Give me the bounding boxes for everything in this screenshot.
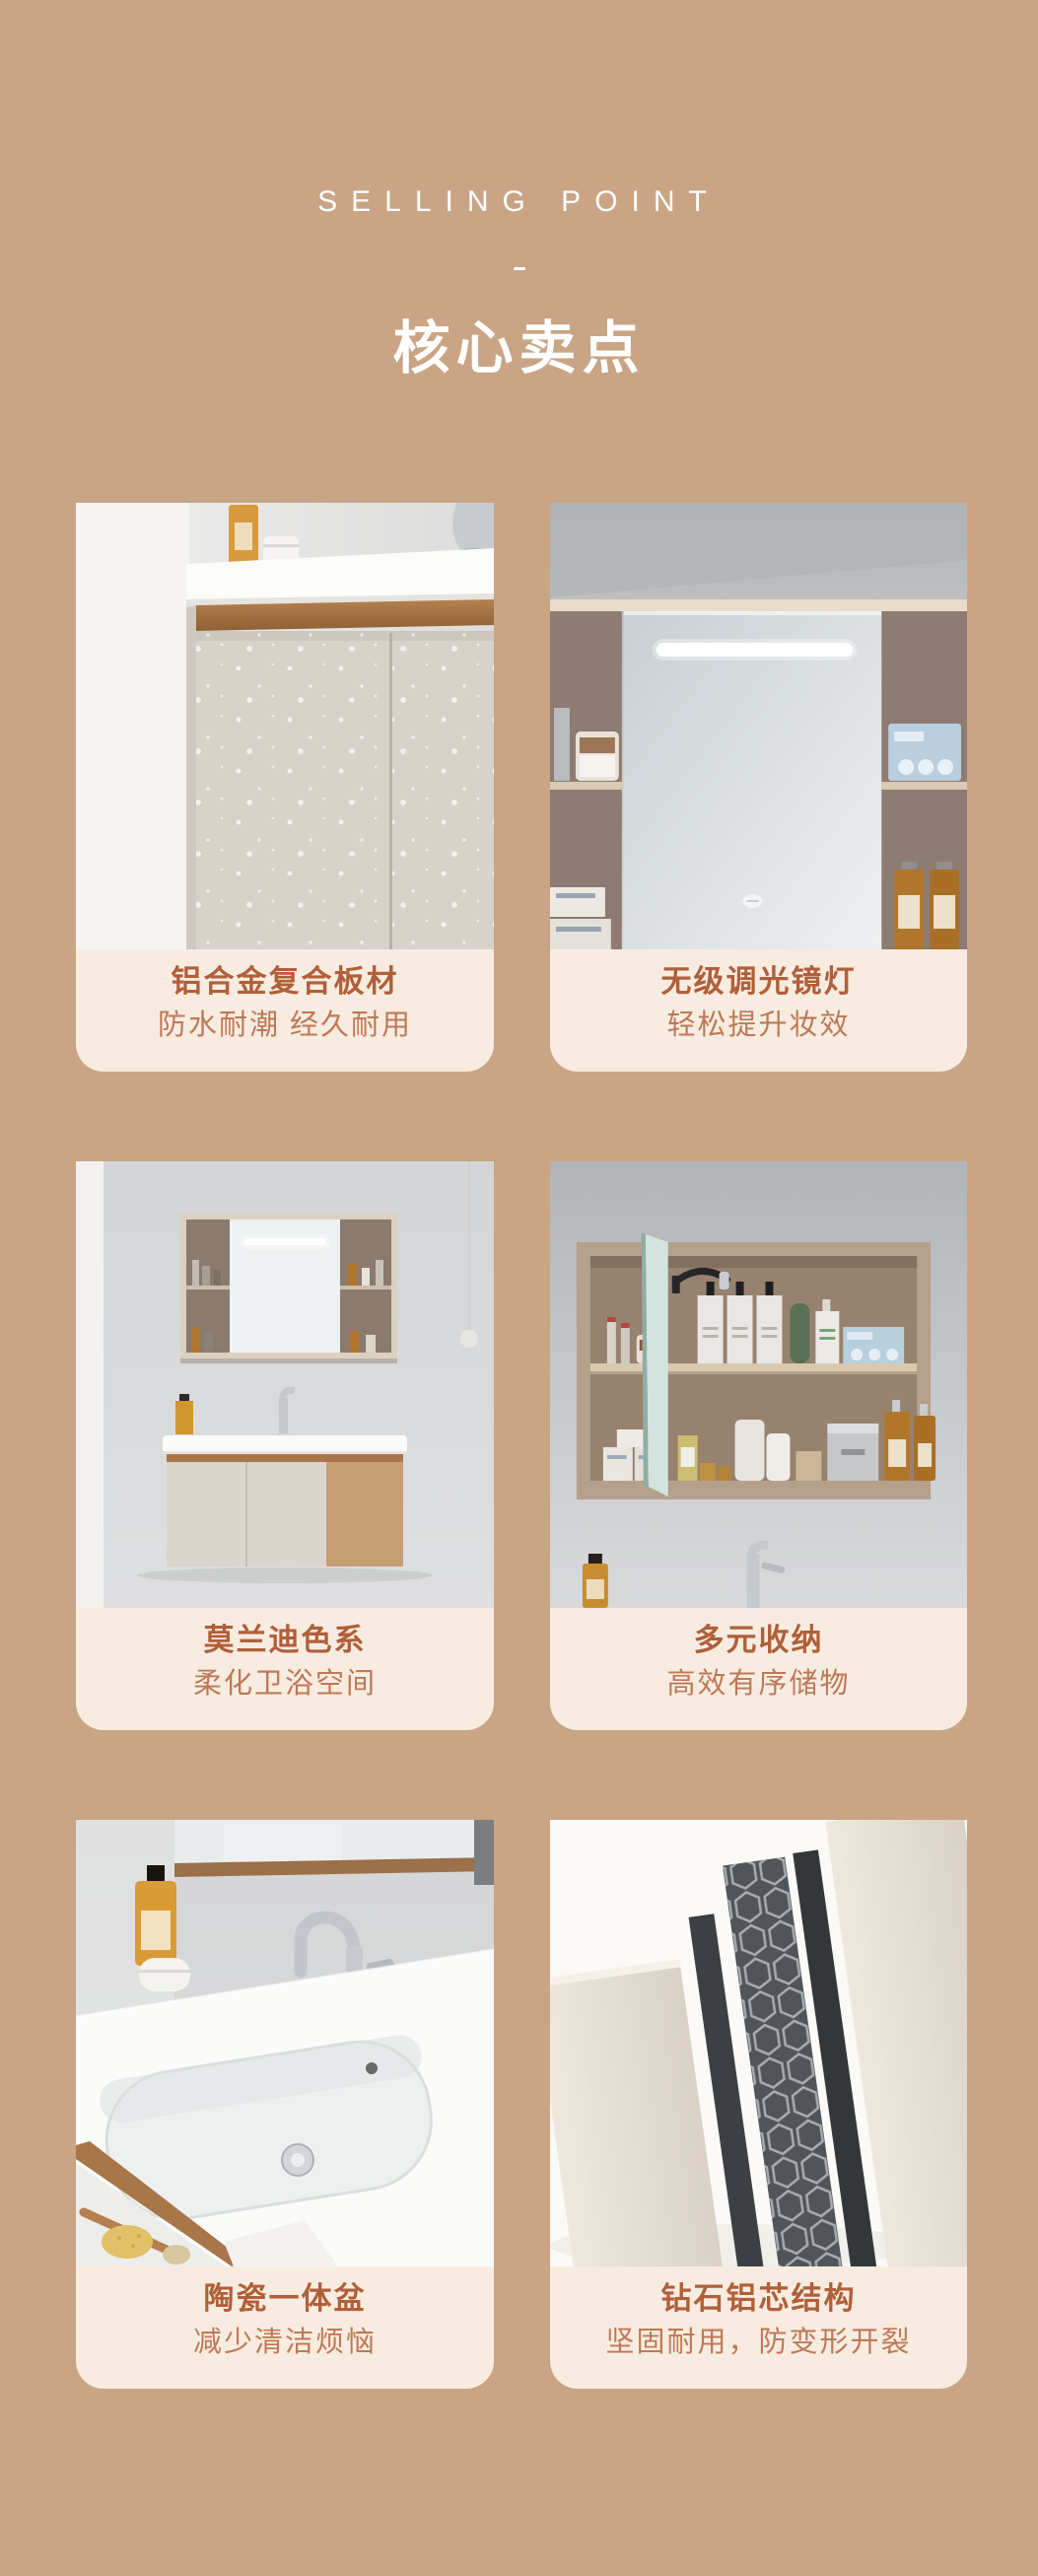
- card-photo-mirror-light: [550, 503, 967, 949]
- card-subtitle: 防水耐潮 经久耐用: [76, 1010, 494, 1042]
- card-caption: 多元收纳 高效有序储物: [550, 1608, 967, 1730]
- selling-point-card-aluminum-board: 铝合金复合板材 防水耐潮 经久耐用: [76, 503, 494, 1072]
- photo-full-vanity: [76, 1161, 494, 1608]
- card-title: 多元收纳: [550, 1623, 967, 1658]
- card-subtitle: 高效有序储物: [550, 1668, 967, 1701]
- photo-basin-closeup: [76, 1820, 494, 2266]
- green-tube: [790, 1303, 809, 1363]
- wood-trim: [167, 1454, 403, 1462]
- card-caption: 陶瓷一体盆 减少清洁烦恼: [76, 2266, 494, 2389]
- card-caption: 钻石铝芯结构 坚固耐用，防变形开裂: [550, 2266, 967, 2389]
- card-title: 铝合金复合板材: [76, 964, 494, 1000]
- open-mirror-door: [646, 1234, 668, 1497]
- card-caption: 无级调光镜灯 轻松提升妆效: [550, 949, 967, 1072]
- selling-point-eyebrow: SELLING POINT: [0, 185, 1038, 219]
- card-title: 莫兰迪色系: [76, 1623, 494, 1658]
- card-subtitle: 减少清洁烦恼: [76, 2327, 494, 2359]
- card-photo-aluminum-core-structure: [550, 1820, 967, 2266]
- led-light-bar: [243, 1238, 326, 1245]
- cream-jar: [139, 1958, 190, 1991]
- sponge: [102, 2225, 153, 2259]
- faucet-icon: [747, 1554, 760, 1608]
- card-photo-ceramic-basin: [76, 1820, 494, 2266]
- tan-door: [326, 1462, 403, 1566]
- card-photo-vanity-scene: [76, 1161, 494, 1608]
- divider-dash: [514, 267, 525, 270]
- card-title: 陶瓷一体盆: [76, 2281, 494, 2317]
- card-subtitle: 柔化卫浴空间: [76, 1668, 494, 1701]
- photo-panel-layers: [550, 1820, 967, 2266]
- page-title: 核心卖点: [0, 302, 1038, 384]
- photo-led-mirror-cabinet: [550, 503, 967, 949]
- selling-point-card-storage: 多元收纳 高效有序储物: [550, 1161, 967, 1730]
- card-photo-storage-cabinet: [550, 1161, 967, 1608]
- selling-points-grid: 铝合金复合板材 防水耐潮 经久耐用: [76, 503, 967, 2389]
- pendant-light: [460, 1330, 478, 1348]
- card-photo-aluminum-board-closeup: [76, 503, 494, 949]
- cabinet-top-frame: [550, 599, 967, 611]
- shelf: [590, 1363, 917, 1371]
- card-title: 无级调光镜灯: [550, 964, 967, 1000]
- promo-page: SELLING POINT 核心卖点: [0, 0, 1038, 2576]
- led-light-bar: [657, 643, 854, 657]
- faucet-icon: [279, 1398, 288, 1437]
- card-subtitle: 轻松提升妆效: [550, 1010, 967, 1042]
- selling-point-card-aluminum-core: 钻石铝芯结构 坚固耐用，防变形开裂: [550, 1820, 967, 2389]
- card-title: 钻石铝芯结构: [550, 2281, 967, 2317]
- overflow-hole: [366, 2062, 378, 2074]
- selling-point-card-mirror-light: 无级调光镜灯 轻松提升妆效: [550, 503, 967, 1072]
- selling-point-card-ceramic-basin: 陶瓷一体盆 减少清洁烦恼: [76, 1820, 494, 2389]
- card-subtitle: 坚固耐用，防变形开裂: [550, 2327, 967, 2359]
- card-caption: 莫兰迪色系 柔化卫浴空间: [76, 1608, 494, 1730]
- selling-point-card-morandi-colors: 莫兰迪色系 柔化卫浴空间: [76, 1161, 494, 1730]
- amber-bottle: [175, 1401, 193, 1434]
- photo-open-storage-cabinet: [550, 1161, 967, 1608]
- card-caption: 铝合金复合板材 防水耐潮 经久耐用: [76, 949, 494, 1072]
- k-bottles: [698, 1282, 783, 1363]
- photo-cabinet-waterdrops: [76, 503, 494, 949]
- countertop: [163, 1435, 407, 1453]
